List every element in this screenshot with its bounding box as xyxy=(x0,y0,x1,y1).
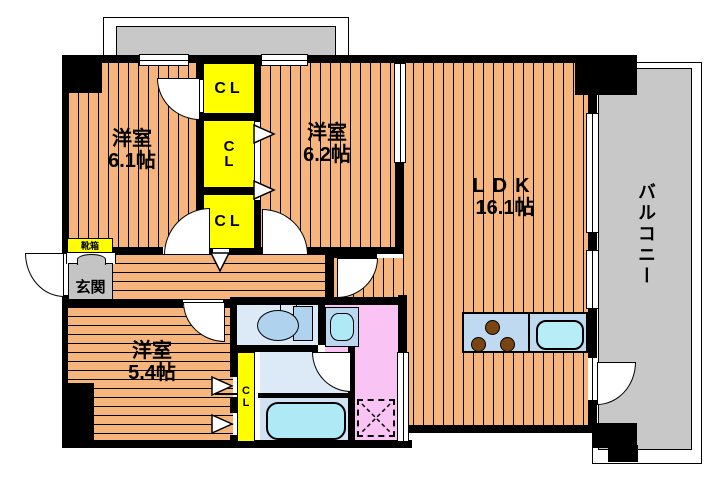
wall-left-upper xyxy=(62,55,68,253)
wall-corner-bottom-left xyxy=(62,383,94,448)
sliding-door-washroom-ldk xyxy=(397,352,409,442)
wall-right-kitchen xyxy=(588,307,597,358)
kitchen-sink-icon xyxy=(536,320,584,350)
folding-door-arrow-cl-54-2 xyxy=(211,414,234,435)
room-6-1-label: 洋室 6.1帖 xyxy=(92,128,172,172)
wall-54-closet-c xyxy=(230,435,237,448)
wall-under-toilet xyxy=(237,345,318,352)
room-6-2-label: 洋室 6.2帖 xyxy=(287,122,367,166)
kitchen-counter-divider xyxy=(528,312,530,353)
shoe-box: 靴箱 xyxy=(67,238,113,253)
closet-top-label: CL xyxy=(214,80,243,98)
closet-middle: C L xyxy=(203,120,255,188)
window-top-2 xyxy=(261,54,308,66)
wall-right-c xyxy=(588,400,597,433)
wall-62-ldk xyxy=(395,160,403,254)
washbasin-bowl-icon xyxy=(330,313,354,341)
door-arc-entrance xyxy=(25,253,64,297)
wall-corner-top-left xyxy=(62,55,102,93)
wall-61-closet-a xyxy=(196,55,203,80)
room-5-4-size: 5.4帖 xyxy=(112,362,192,384)
washing-machine-pan-cross-icon xyxy=(357,399,395,437)
balcony-label: バルコニー xyxy=(633,182,659,352)
closet-5-4: C L xyxy=(237,352,255,442)
window-ldk-balcony-2 xyxy=(586,250,599,309)
wall-dressing-bath xyxy=(258,393,350,398)
room-5-4-name: 洋室 xyxy=(112,340,192,362)
wall-54-closet-a xyxy=(230,305,237,377)
closet-5-4-letter-c: C xyxy=(242,385,250,397)
wall-water-top xyxy=(230,297,407,305)
window-ldk-balcony-1 xyxy=(586,113,599,233)
wall-corner-top-right xyxy=(575,55,637,95)
closet-middle-letter-l: L xyxy=(224,154,233,169)
folding-door-arrow-cl-middle-1 xyxy=(253,124,276,145)
room-6-2-name: 洋室 xyxy=(287,122,367,144)
folding-door-arrow-cl-54-1 xyxy=(211,376,234,397)
stove-burner-icon-2 xyxy=(471,337,486,352)
closet-top: CL xyxy=(203,63,255,114)
wall-ldk-bottom xyxy=(398,425,603,433)
sliding-door-62-ldk xyxy=(394,63,406,163)
ldk-size: 16.1帖 xyxy=(460,197,550,219)
entrance-label: 玄関 xyxy=(75,276,105,297)
wall-corner-bottom-right-b xyxy=(608,445,638,462)
closet-bottom-label: CL xyxy=(214,213,243,231)
bathtub-icon xyxy=(266,402,346,440)
room-6-1-size: 6.1帖 xyxy=(92,150,172,172)
entrance-floor: 玄関 xyxy=(68,263,113,300)
entrance-arch xyxy=(77,254,106,265)
stove-burner-icon-3 xyxy=(500,337,515,352)
folding-door-arrow-cl-middle-2 xyxy=(253,180,276,201)
room-6-2-size: 6.2帖 xyxy=(287,144,367,166)
floor-plan: CL C L CL C L 靴箱 玄関 xyxy=(0,0,726,494)
room-5-4-label: 洋室 5.4帖 xyxy=(112,340,192,384)
stove-burner-icon-1 xyxy=(485,320,500,335)
wall-hall-54-a xyxy=(62,300,183,307)
ldk-floor xyxy=(403,63,588,425)
wall-toilet-washroom xyxy=(318,305,325,345)
wall-washroom-ldk xyxy=(398,295,407,352)
closet-bottom: CL xyxy=(203,194,255,249)
closet-5-4-letter-l: L xyxy=(243,397,250,409)
wall-right-b xyxy=(588,230,597,252)
ldk-label: LDK 16.1帖 xyxy=(460,175,550,219)
toilet-bowl-icon xyxy=(257,310,299,341)
window-top-1 xyxy=(139,54,189,66)
wall-right-a xyxy=(588,55,597,115)
wall-hall-end xyxy=(325,253,333,300)
closet-middle-letter-c: C xyxy=(224,139,235,154)
folding-door-arrow-cl-bottom xyxy=(210,252,231,273)
shoe-box-label: 靴箱 xyxy=(81,239,99,252)
room-6-1-name: 洋室 xyxy=(92,128,172,150)
ldk-name: LDK xyxy=(460,175,550,197)
wall-54-closet-b xyxy=(230,397,237,413)
